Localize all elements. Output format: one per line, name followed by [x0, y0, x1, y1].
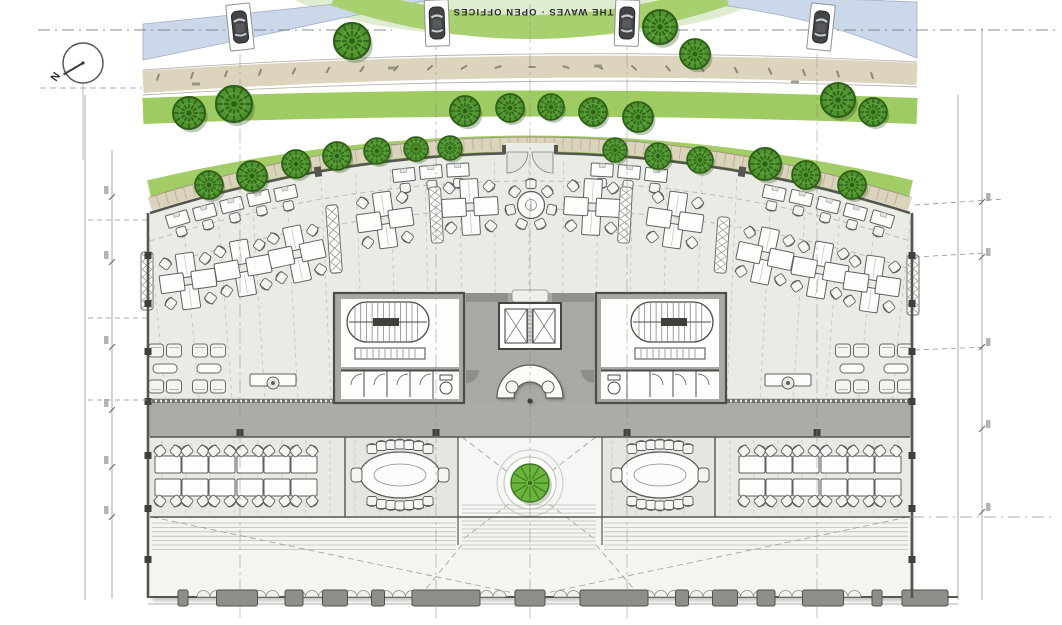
planter-strip — [618, 187, 633, 244]
road-label-mark — [594, 65, 602, 68]
lobby-wall-left — [466, 293, 508, 302]
pilaster — [145, 300, 152, 307]
facade-column — [803, 590, 844, 606]
facade-column — [902, 590, 948, 606]
entrance-jamb-right — [554, 145, 558, 154]
facade-column — [872, 590, 882, 606]
pilaster — [145, 252, 152, 259]
facade-column — [323, 590, 348, 606]
pilaster — [909, 252, 916, 259]
parked-car-icon — [807, 3, 836, 51]
road-label-mark — [791, 81, 799, 84]
road-label-mark — [192, 83, 200, 86]
facade-column — [372, 590, 385, 606]
stair-left — [347, 302, 429, 359]
pilaster — [145, 452, 152, 459]
site-plan-canvas: N THE WAVES · OPEN OFFICES — [0, 0, 1062, 625]
parked-car-icon — [226, 3, 255, 51]
stair-right — [631, 302, 713, 359]
pilaster — [909, 398, 916, 405]
facade-column — [676, 590, 689, 606]
pilaster — [909, 556, 916, 563]
pilaster — [909, 505, 916, 512]
facade-column — [285, 590, 303, 606]
road-label-mark — [388, 67, 396, 70]
pilaster — [145, 556, 152, 563]
pilaster — [909, 348, 916, 355]
facade-column — [178, 590, 188, 606]
facade-column — [412, 590, 480, 606]
facade-column — [757, 590, 775, 606]
pilaster — [909, 452, 916, 459]
lobby-wall-right — [552, 293, 594, 302]
parked-car-icon — [424, 0, 450, 46]
pilaster — [145, 348, 152, 355]
facade-column — [580, 590, 648, 606]
parked-car-icon — [614, 0, 640, 46]
entrance-jamb-left — [502, 145, 506, 154]
plan-title: THE WAVES · OPEN OFFICES — [453, 6, 614, 17]
facade-column — [713, 590, 738, 606]
pilaster — [909, 300, 916, 307]
pilaster — [145, 505, 152, 512]
pilaster — [145, 398, 152, 405]
facade-column — [217, 590, 258, 606]
floor-plan-page: N THE WAVES · OPEN OFFICES — [0, 0, 1062, 625]
